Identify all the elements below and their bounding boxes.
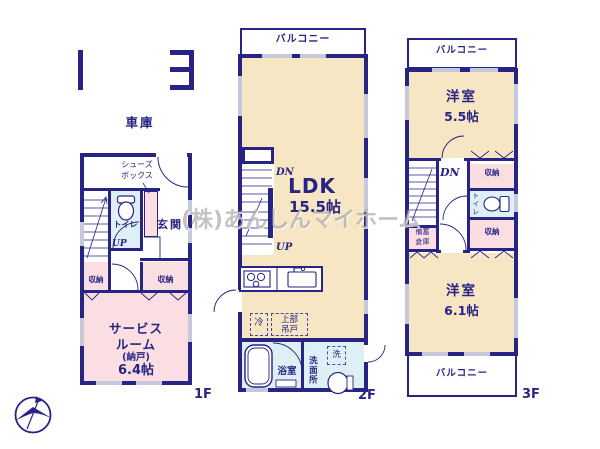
- f2-upper-cabinet-label-2: 吊戸: [271, 326, 308, 335]
- f1-wall-closet-left: [108, 262, 111, 290]
- f2-bathroom-floor: [242, 342, 301, 388]
- company-watermark: (株)あんしんマイホーム: [181, 202, 420, 234]
- f3-room-55-size: 5.5帖: [409, 110, 514, 124]
- f1-entrance-step-line: [144, 237, 160, 259]
- f1-shoes-box-label-1: シューズ: [116, 161, 158, 170]
- f2-door-gap-right: [364, 345, 368, 362]
- f3-stock-label-2: 倉庫: [409, 239, 436, 247]
- f2-up-label: UP: [276, 242, 292, 253]
- f1-wall-service-top: [84, 290, 192, 293]
- f1-wall-toilet-entrance: [140, 191, 143, 251]
- f3-window-right-3: [514, 298, 518, 338]
- f3-window-bottom-2: [464, 352, 490, 356]
- f3-window-right-2: [514, 194, 518, 212]
- f3-outer-wall-top: [405, 68, 518, 72]
- f3-window-right-1: [514, 84, 518, 124]
- f3-door-gap-hall: [441, 250, 463, 253]
- f1-wall-entrance-bottom: [140, 258, 192, 261]
- f1-garage-wall-left: [78, 50, 83, 90]
- f3-window-top-2: [470, 68, 498, 72]
- f1-closet-right-label: 収納: [143, 276, 188, 285]
- f2-washer-label: 洗: [327, 351, 346, 360]
- f3-room-55-label: 洋室: [409, 90, 514, 105]
- f2-window-right-3: [364, 300, 368, 314]
- f1-outer-wall-right: [188, 153, 192, 385]
- f3-wall-toilet-closet: [467, 217, 517, 220]
- f2-wall-bath-wash: [301, 342, 304, 388]
- f1-stairs-treads: [84, 197, 108, 258]
- f2-fridge-label: 冷: [250, 319, 268, 329]
- f1-garage-label: 車庫: [120, 116, 160, 130]
- f1-service-room-label-2: ルーム: [84, 338, 188, 352]
- f3-room-61-label: 洋室: [409, 284, 514, 299]
- f3-room-61-size: 6.1帖: [409, 304, 514, 318]
- f3-closet-bottom-label: 収納: [470, 228, 514, 236]
- f1-window-bottom-2: [136, 381, 162, 385]
- f1-closet-left-label: 収納: [84, 276, 108, 284]
- f2-balcony-label: バルコニー: [240, 34, 366, 45]
- f1-service-room-size: 6.4帖: [84, 364, 188, 378]
- f1-entrance-door-arc: [158, 157, 188, 187]
- f1-window-right-3: [188, 314, 192, 342]
- f1-wall-hall-top: [84, 188, 160, 191]
- floor-plan-canvas: (株)あんしんマイホーム 車庫 シューズ ボックス トイレ 玄関 UP 収納 収…: [0, 0, 600, 449]
- f2-upper-cabinet-label-1: 上部: [271, 316, 308, 325]
- f1-hall-door-arc: [112, 264, 138, 290]
- f3-balcony-top-label: バルコニー: [407, 46, 517, 56]
- f1-shoes-box-label-2: ボックス: [116, 172, 158, 181]
- f2-stair-void: [242, 147, 274, 164]
- f2-left-exterior-door-arc: [214, 290, 236, 312]
- f3-toilet-label: トイレ: [471, 192, 479, 216]
- compass-north-icon: [15, 396, 53, 433]
- f3-wall-stock-bottom: [409, 249, 439, 252]
- f2-bathroom-label: 浴室: [276, 367, 298, 377]
- f1-garage-wall-right: [189, 50, 194, 90]
- f3-wall-closet-bottom: [467, 248, 517, 251]
- f2-door-gap-left: [238, 290, 242, 312]
- f2-window-top-2: [300, 54, 326, 58]
- f1-service-room-label-1: サービス: [84, 322, 188, 336]
- f3-dn-label: DN: [440, 167, 460, 179]
- f3-wall-closet-toilet: [467, 188, 517, 191]
- f3-toilet-door-arc: [443, 196, 467, 220]
- f1-floor-label: 1F: [194, 388, 212, 402]
- f3-hall-door-arc: [440, 224, 466, 250]
- f1-entrance-door-gap: [156, 153, 187, 157]
- f2-ldk-label: LDK: [272, 175, 352, 197]
- f2-washroom-label: 洗面所: [307, 350, 316, 390]
- f1-service-room-label-3: (納戸): [84, 353, 188, 363]
- f1-window-left-1: [80, 222, 84, 246]
- f2-window-bottom-1: [246, 388, 268, 392]
- f3-window-bottom-1: [422, 352, 448, 356]
- f3-window-top-1: [432, 68, 460, 72]
- f2-window-right-1: [364, 94, 368, 138]
- f2-dn-label: DN: [276, 167, 294, 178]
- f2-window-left-1: [238, 76, 242, 116]
- f1-up-label: UP: [112, 240, 127, 250]
- f2-right-exterior-door-arc: [368, 345, 385, 362]
- f3-floor-label: 3F: [522, 388, 540, 402]
- f3-door-gap-room55: [441, 158, 464, 161]
- f1-window-bottom-1: [96, 381, 122, 385]
- f1-toilet-label: トイレ: [111, 221, 140, 230]
- f3-balcony-bottom-label: バルコニー: [407, 369, 517, 379]
- f3-closet-top-label: 収納: [470, 169, 514, 177]
- f3-wall-stairs-right: [436, 161, 439, 253]
- f2-floor-label: 2F: [358, 389, 376, 403]
- f2-window-top-1: [262, 54, 292, 58]
